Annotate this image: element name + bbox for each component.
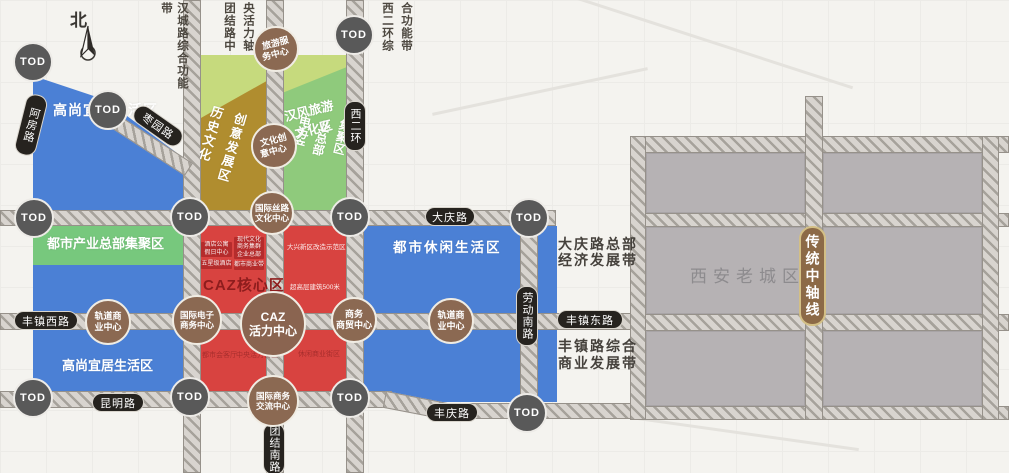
label-tuanjie-axis-col1: 团结路中 <box>221 2 237 52</box>
old-city-block <box>646 153 805 213</box>
faint-street <box>432 67 648 116</box>
caz-chip-4: 都市商业带 <box>234 261 264 270</box>
caz-ne-top-label: 大兴新区改造示范区 <box>287 241 346 251</box>
center-rail-business-west: 轨道商 业中心 <box>85 299 131 345</box>
caz-chip-1-line1: 酒店公寓 <box>201 242 232 249</box>
planning-map: 北 汉城路综合功能带 团结路中 央活力轴 西二环综 合功能带 高尚宜居生活区 都… <box>0 0 1009 473</box>
badge-road-fengqing: 丰庆路 <box>426 403 478 422</box>
label-xierhuan-belt-col2: 合功能带 <box>398 2 414 52</box>
tod-node: TOD <box>88 90 128 130</box>
center-rail-business-west-line2: 业中心 <box>94 322 121 333</box>
caz-chip-4-line: 都市商业带 <box>234 262 264 269</box>
badge-road-daqing: 大庆路 <box>425 207 475 226</box>
compass-needle-icon <box>72 24 104 64</box>
caz-chip-2-line2: 商务集群 <box>234 244 264 251</box>
caz-chip-2: 现代文化 商务集群 企业总部 <box>234 237 264 259</box>
road-oldcity-east-wall <box>982 136 999 420</box>
label-xierhuan-belt: 西二环综 合功能带 <box>379 2 414 52</box>
label-xierhuan-belt-col1: 西二环综 <box>379 2 395 52</box>
tod-node: TOD <box>14 198 54 238</box>
tod-node: TOD <box>330 197 370 237</box>
center-rail-business-east-line1: 轨道商 <box>437 310 464 321</box>
road-oldcity-west-wall <box>630 136 646 420</box>
center-caz-vitality-line1: CAZ <box>261 310 286 324</box>
caz-ne-bottom-label: 超高层建筑500米 <box>290 281 340 291</box>
center-intl-business-exchange-line2: 交流中心 <box>256 401 290 411</box>
center-ecommerce-line2: 商务中心 <box>180 320 214 330</box>
old-city-block <box>823 153 982 213</box>
label-zone-noble2: 高尚宜居生活区 <box>62 355 153 374</box>
tod-node: TOD <box>170 197 210 237</box>
center-rail-business-east-line2: 业中心 <box>437 321 464 332</box>
badge-road-kunming: 昆明路 <box>92 393 144 412</box>
label-zone-industry-hq: 都市产业总部集聚区 <box>47 233 164 252</box>
center-caz-vitality: CAZ 活力中心 <box>240 291 306 357</box>
badge-road-laodong-south: 劳动南路 <box>516 286 538 346</box>
center-business-trade-line1: 商务 <box>345 309 363 320</box>
badge-road-tuanjie-south: 团结南路 <box>263 423 285 473</box>
label-hancheng-belt: 汉城路综合功能带 <box>158 2 190 97</box>
old-city-block <box>823 227 982 314</box>
badge-road-fengzhen-east: 丰镇东路 <box>557 310 623 329</box>
label-fengzhen-belt-line2: 商业发展带 <box>558 353 638 373</box>
caz-chip-3-line: 五星级酒店 <box>201 261 232 268</box>
caz-ghost-label-1: 都市会客厅 <box>202 350 237 360</box>
center-business-trade: 商务 商贸中心 <box>331 297 377 343</box>
badge-traditional-axis: 传统中轴线 <box>799 226 826 326</box>
caz-chip-3: 五星级酒店 <box>201 260 232 269</box>
badge-road-fengzhen-west: 丰镇西路 <box>14 311 78 330</box>
caz-chip-2-line3: 企业总部 <box>234 252 264 259</box>
center-travel-service: 旅游服 务中心 <box>253 26 299 72</box>
caz-chip-1-line2: 假日中心 <box>201 250 232 257</box>
center-ecommerce: 国际电子 商务中心 <box>172 295 222 345</box>
label-zone-leisure: 都市休闲生活区 <box>393 236 502 256</box>
label-daqing-belt-line2: 经济发展带 <box>558 250 638 270</box>
center-rail-business-east: 轨道商 业中心 <box>428 298 474 344</box>
caz-ghost-label-3: 休闲商业街区 <box>298 349 340 359</box>
tod-node: TOD <box>507 393 547 433</box>
center-intl-business-exchange-line1: 国际商务 <box>256 391 290 401</box>
badge-road-xierhuan: 西二环 <box>344 101 366 151</box>
tod-node: TOD <box>13 378 53 418</box>
center-caz-vitality-line2: 活力中心 <box>249 324 297 338</box>
old-city-block <box>823 331 982 406</box>
caz-chip-1: 酒店公寓 假日中心 <box>201 242 232 257</box>
center-silk-road-culture-line2: 文化中心 <box>255 213 289 223</box>
center-business-trade-line2: 商贸中心 <box>336 320 372 331</box>
old-city-block <box>646 331 805 406</box>
center-ecommerce-line1: 国际电子 <box>180 310 214 320</box>
tod-node: TOD <box>334 15 374 55</box>
tod-node: TOD <box>509 198 549 238</box>
label-tuanjie-axis: 团结路中 央活力轴 <box>221 2 256 52</box>
label-old-city: 西安老城区 <box>690 262 805 287</box>
center-intl-business-exchange: 国际商务 交流中心 <box>247 375 299 427</box>
tod-node: TOD <box>13 42 53 82</box>
center-culture-creative: 文化创 意中心 <box>251 123 297 169</box>
tod-node: TOD <box>170 377 210 417</box>
center-silk-road-culture-line1: 国际丝路 <box>255 203 289 213</box>
tod-node: TOD <box>330 378 370 418</box>
center-rail-business-west-line1: 轨道商 <box>94 311 121 322</box>
center-silk-road-culture: 国际丝路 文化中心 <box>250 191 294 235</box>
